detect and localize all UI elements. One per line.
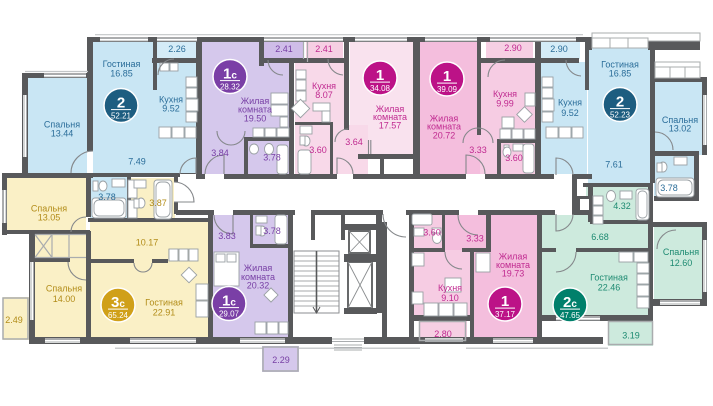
svg-text:1: 1 — [443, 68, 451, 85]
svg-text:12.60: 12.60 — [670, 258, 693, 268]
svg-text:3.83: 3.83 — [218, 231, 236, 241]
svg-text:2.41: 2.41 — [315, 44, 333, 54]
svg-text:Гостиная: Гостиная — [145, 298, 183, 308]
svg-text:Спальня: Спальня — [663, 247, 699, 257]
svg-text:16.85: 16.85 — [110, 69, 133, 79]
svg-text:65.24: 65.24 — [108, 311, 129, 320]
svg-text:Кухня: Кухня — [558, 98, 582, 108]
svg-text:3.78: 3.78 — [263, 153, 281, 163]
svg-text:20.72: 20.72 — [433, 131, 456, 141]
svg-text:28.32: 28.32 — [220, 83, 241, 92]
svg-text:52.23: 52.23 — [610, 111, 631, 120]
svg-text:2: 2 — [616, 94, 624, 111]
svg-text:8.07: 8.07 — [315, 90, 333, 100]
svg-text:9.52: 9.52 — [561, 108, 579, 118]
svg-text:14.00: 14.00 — [53, 294, 76, 304]
svg-text:7.61: 7.61 — [605, 160, 623, 170]
svg-text:Гостиная: Гостиная — [103, 59, 141, 69]
svg-text:2.80: 2.80 — [434, 329, 452, 339]
svg-text:2.49: 2.49 — [5, 315, 23, 325]
svg-text:37.17: 37.17 — [495, 310, 516, 319]
svg-text:1: 1 — [501, 293, 509, 310]
svg-text:Гостиная: Гостиная — [590, 273, 628, 283]
svg-text:13.02: 13.02 — [669, 124, 692, 134]
svg-text:13.44: 13.44 — [51, 129, 74, 139]
svg-text:3.78: 3.78 — [660, 183, 678, 193]
svg-text:47.65: 47.65 — [560, 311, 581, 320]
svg-text:Кухня: Кухня — [493, 89, 517, 99]
svg-text:1: 1 — [376, 67, 384, 84]
svg-text:22.46: 22.46 — [598, 283, 621, 293]
svg-text:3.60: 3.60 — [423, 228, 441, 238]
svg-text:52.21: 52.21 — [111, 112, 132, 121]
svg-text:3.87: 3.87 — [149, 198, 167, 208]
svg-text:Кухня: Кухня — [438, 283, 462, 293]
svg-text:4.32: 4.32 — [613, 201, 631, 211]
svg-text:2: 2 — [117, 95, 125, 112]
svg-text:2.90: 2.90 — [550, 44, 568, 54]
svg-text:3.78: 3.78 — [263, 226, 281, 236]
svg-text:3.19: 3.19 — [622, 331, 640, 341]
svg-text:2.29: 2.29 — [272, 355, 290, 365]
svg-text:6.68: 6.68 — [591, 232, 609, 242]
svg-text:3.64: 3.64 — [345, 137, 363, 147]
svg-text:3.33: 3.33 — [469, 145, 487, 155]
svg-text:19.50: 19.50 — [244, 114, 267, 124]
svg-text:Спальня: Спальня — [46, 284, 82, 294]
svg-text:17.57: 17.57 — [379, 121, 402, 131]
svg-text:29.07: 29.07 — [219, 310, 240, 319]
svg-text:7.49: 7.49 — [128, 157, 146, 167]
svg-text:3.60: 3.60 — [309, 145, 327, 155]
svg-text:3.33: 3.33 — [466, 234, 484, 244]
svg-text:16.85: 16.85 — [609, 69, 632, 79]
svg-text:3.84: 3.84 — [211, 148, 229, 158]
svg-text:2.26: 2.26 — [168, 44, 186, 54]
svg-text:3.78: 3.78 — [98, 192, 116, 202]
svg-text:19.73: 19.73 — [502, 269, 525, 279]
svg-text:20.32: 20.32 — [247, 281, 270, 291]
svg-text:34.08: 34.08 — [370, 84, 391, 93]
svg-text:10.17: 10.17 — [136, 238, 159, 248]
svg-text:39.09: 39.09 — [437, 85, 458, 94]
svg-text:2.41: 2.41 — [275, 44, 293, 54]
svg-text:9.10: 9.10 — [441, 293, 459, 303]
svg-text:2.90: 2.90 — [504, 43, 522, 53]
svg-text:13.05: 13.05 — [38, 213, 61, 223]
svg-text:9.99: 9.99 — [496, 99, 514, 109]
svg-text:9.52: 9.52 — [162, 104, 180, 114]
svg-text:22.91: 22.91 — [153, 308, 176, 318]
svg-text:3.60: 3.60 — [505, 153, 523, 163]
